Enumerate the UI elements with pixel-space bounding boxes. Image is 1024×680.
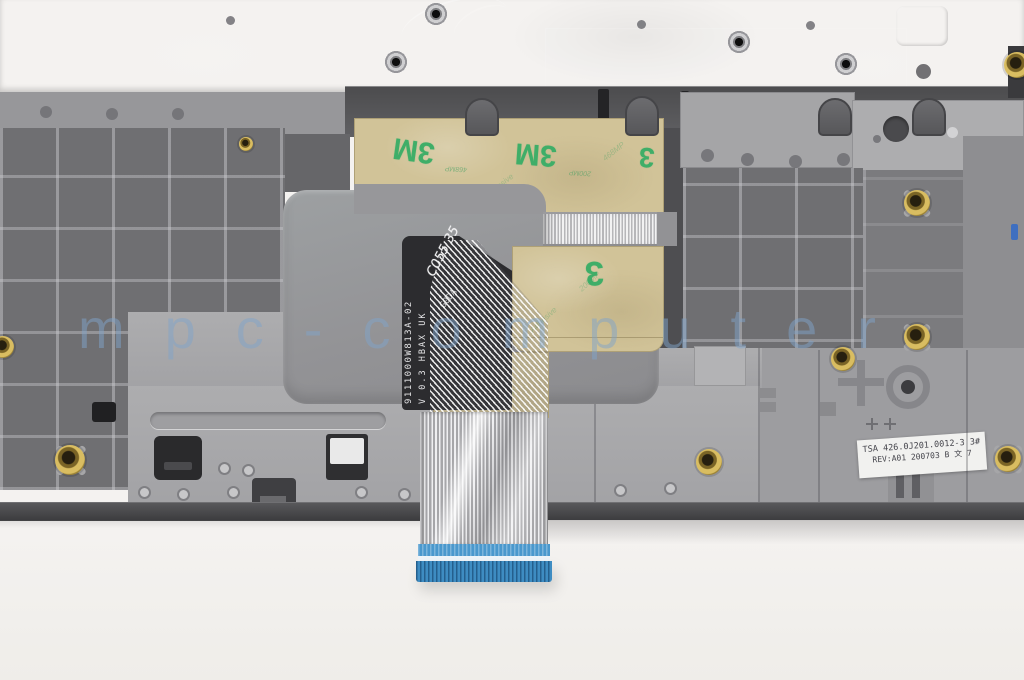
- brass-insert: [1004, 52, 1024, 78]
- panel-seam: [818, 350, 820, 510]
- screw-hole: [424, 2, 448, 26]
- screw-hole-small: [138, 486, 151, 499]
- blue-connector-contacts: [416, 561, 552, 582]
- ffc-cable-vertical-segment: [420, 412, 548, 546]
- rivet-dot: [637, 20, 646, 29]
- alignment-plus-mark: [866, 418, 878, 430]
- rivet-dot: [916, 64, 931, 79]
- embossed-stamp: [896, 6, 948, 46]
- rivet-dot: [837, 153, 850, 166]
- liner-text: 468MP: [601, 140, 627, 163]
- bracket-hole: [883, 116, 909, 142]
- panel-seam: [966, 350, 968, 510]
- latch-tab: [912, 98, 946, 136]
- rubber-pad: [154, 436, 202, 480]
- brass-insert: [239, 137, 253, 151]
- cross-rib: [857, 360, 865, 406]
- blue-paint-mark: [1011, 224, 1018, 240]
- touchpad-corner-cutout: [354, 184, 546, 214]
- rivet-dot: [701, 149, 714, 162]
- bracket-slot: [150, 412, 386, 429]
- screw-hole-small: [177, 488, 190, 501]
- watermark: mpc-computer: [78, 296, 916, 361]
- white-pad: [330, 438, 364, 464]
- rivet-dot: [789, 155, 802, 168]
- screw-hole-small: [398, 488, 411, 501]
- brass-insert: [55, 445, 85, 475]
- molded-socket: [92, 402, 116, 422]
- rivet-dot: [806, 21, 815, 30]
- palmrest-product-photo: TSA 426.0J201.0012-3 3# REV:A01 200703 B…: [0, 0, 1024, 680]
- alignment-plus-mark: [884, 418, 896, 430]
- panel-seam: [758, 348, 760, 512]
- screw-hole-small: [614, 484, 627, 497]
- three-m-logo-partial: 3: [639, 141, 664, 181]
- screw-hole-small: [227, 486, 240, 499]
- edge-shadow: [540, 520, 1024, 544]
- rivet-dot: [106, 108, 118, 120]
- molded-square: [820, 402, 836, 416]
- latch-tab: [625, 96, 659, 136]
- screw-hole-small: [664, 482, 677, 495]
- brass-insert: [995, 446, 1021, 472]
- brass-insert: [696, 449, 722, 475]
- screw-hole-small: [218, 462, 231, 475]
- keyboard-plate: [0, 0, 1024, 92]
- three-m-logo: 3M: [391, 130, 437, 169]
- screw-hole: [384, 50, 408, 74]
- screw-hole-small: [355, 486, 368, 499]
- cable-end-cap: [657, 212, 677, 246]
- latch-tab: [818, 98, 852, 136]
- rivet-dot: [40, 106, 52, 118]
- liner-text: 468MP: [445, 164, 468, 172]
- brass-insert: [904, 190, 930, 216]
- three-m-logo-digit: 3: [639, 141, 656, 174]
- ffc-cable-horizontal-segment: [543, 212, 659, 246]
- liner-text: 200MP: [569, 168, 592, 176]
- rivet-dot: [172, 108, 184, 120]
- screw-hole-small: [242, 464, 255, 477]
- three-m-logo: 3M: [514, 136, 558, 173]
- rivet-dot: [873, 135, 881, 143]
- rivet-dot: [226, 16, 235, 25]
- rivet-dot: [741, 153, 754, 166]
- screw-hole: [834, 52, 858, 76]
- rubber-pad-detail: [164, 462, 192, 470]
- rivet-bright: [947, 127, 958, 138]
- boss-center-hole: [901, 380, 915, 394]
- screw-hole: [727, 30, 751, 54]
- latch-tab: [465, 98, 499, 136]
